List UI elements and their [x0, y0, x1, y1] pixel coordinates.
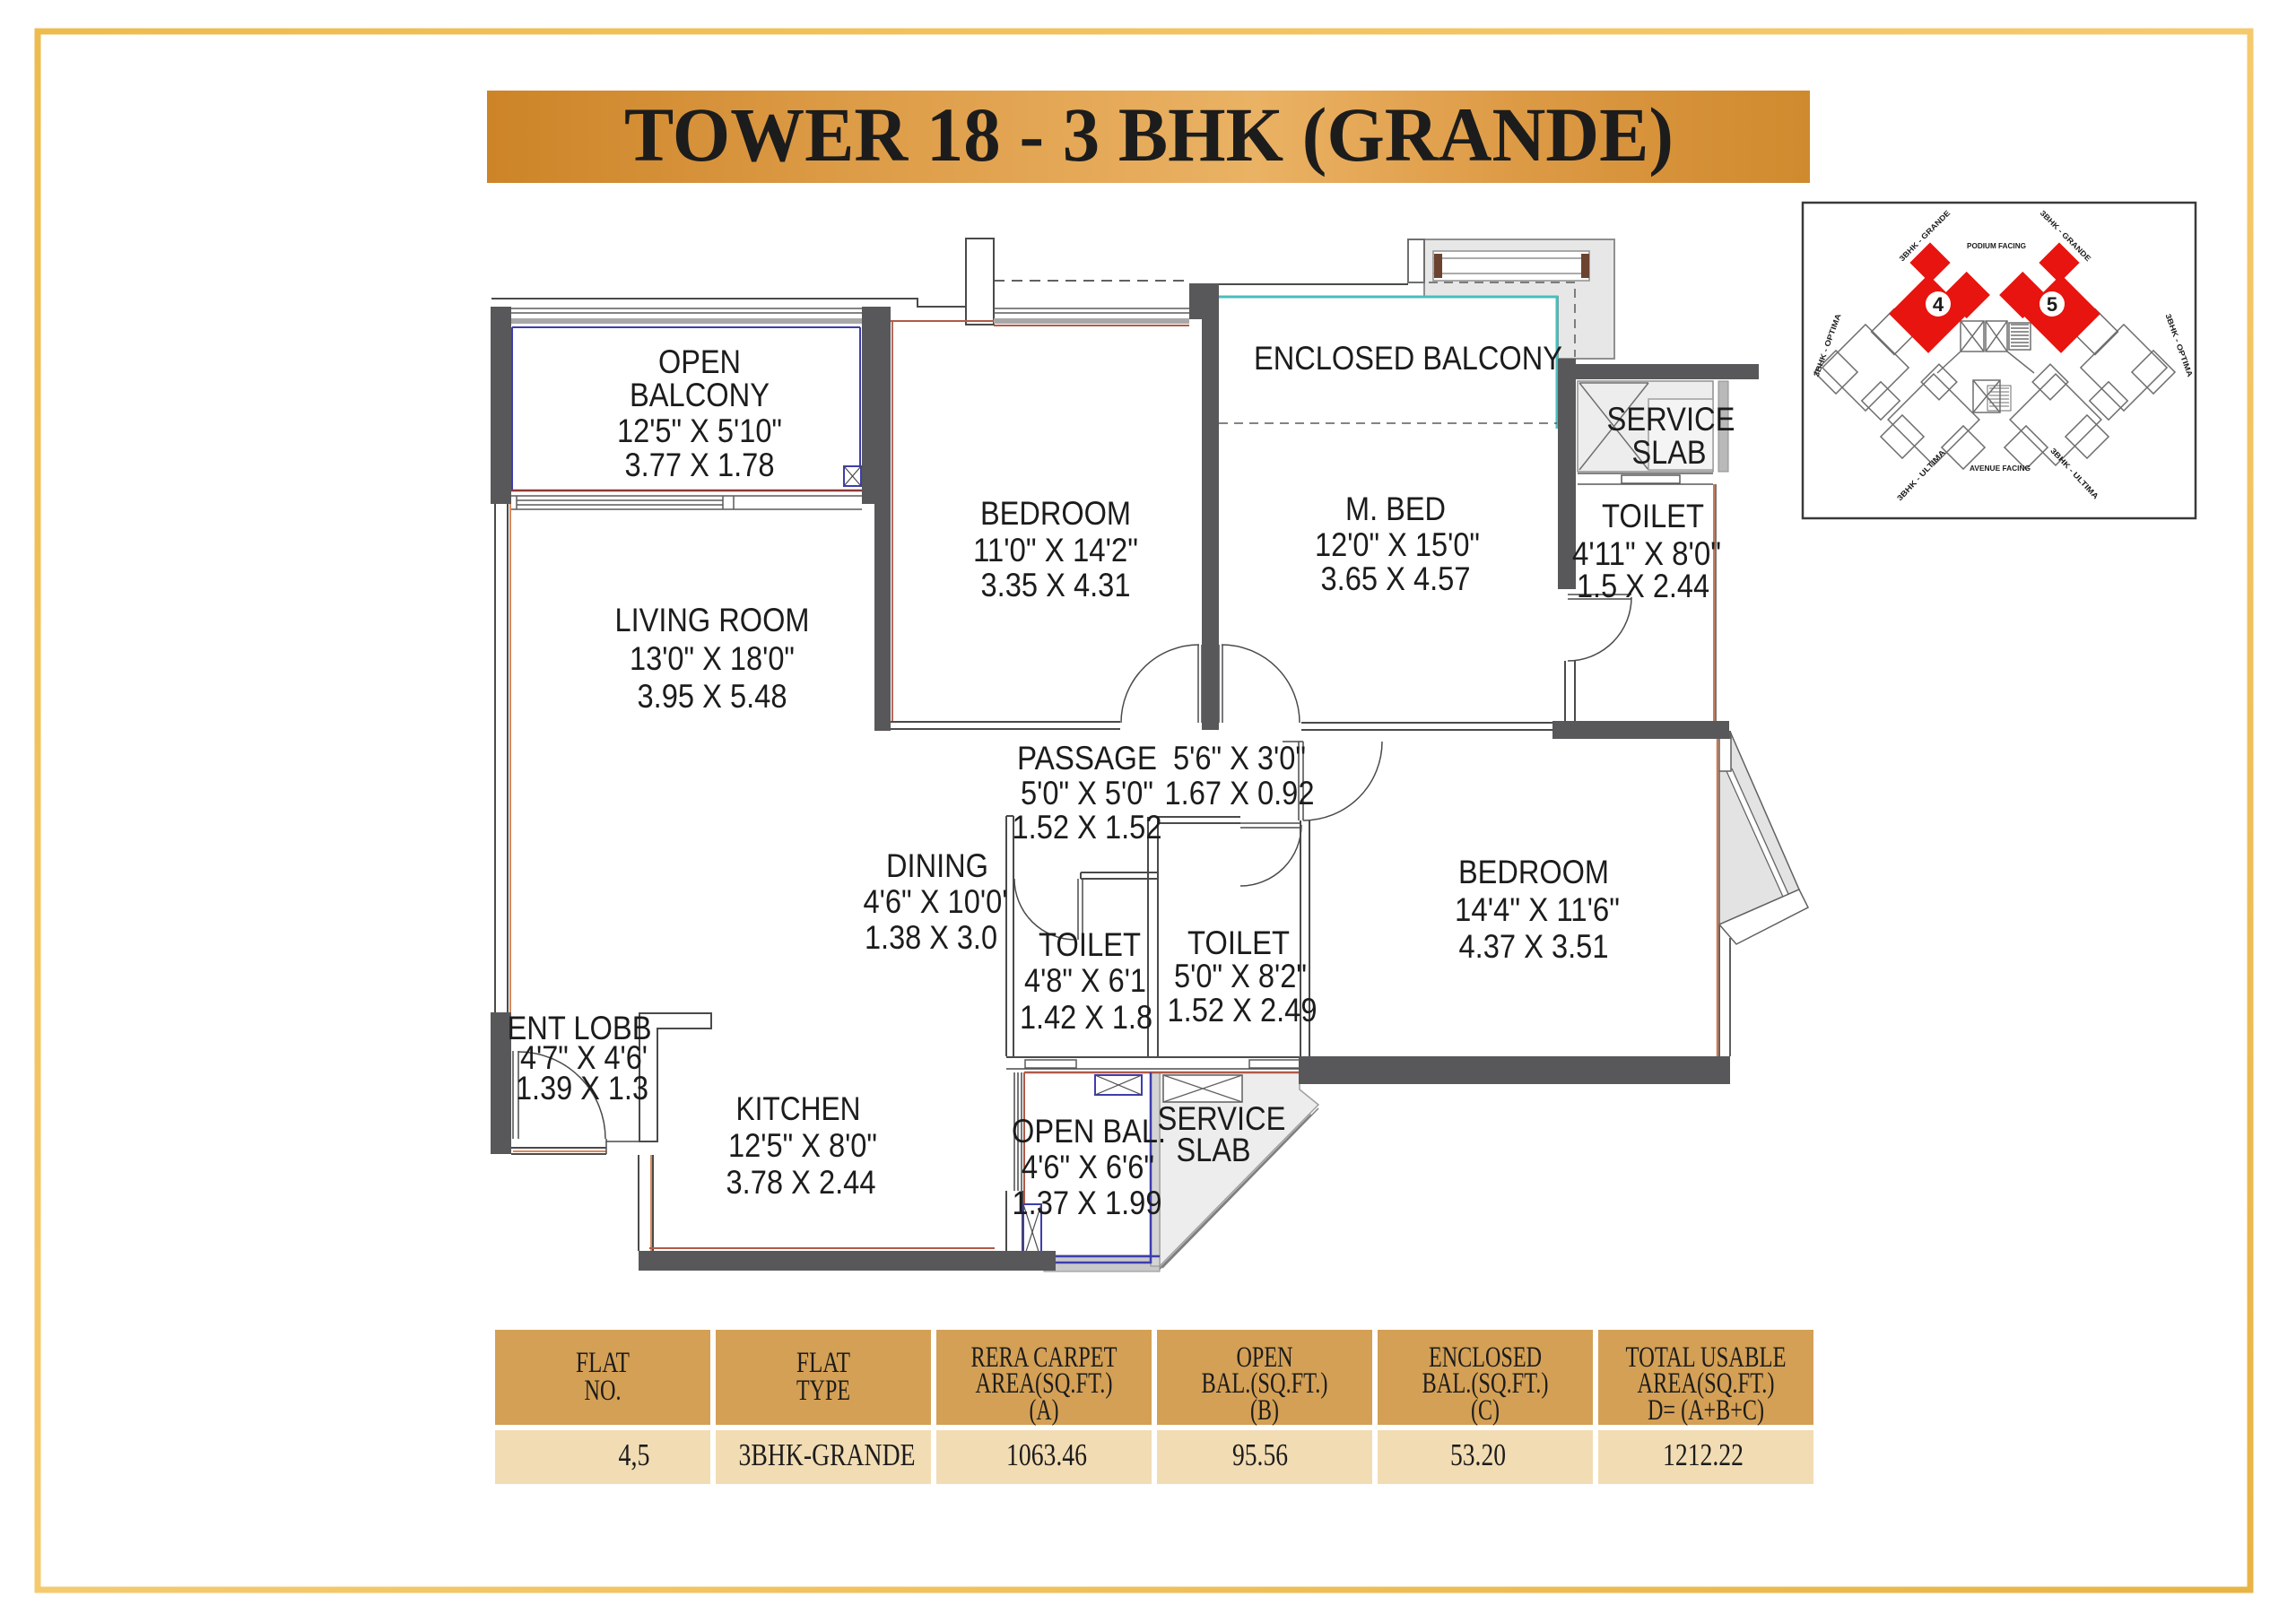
svg-text:4'8" X 6'1: 4'8" X 6'1 — [1024, 962, 1146, 999]
svg-text:1.52 X 1.52: 1.52 X 1.52 — [1013, 809, 1162, 846]
svg-text:SLAB: SLAB — [1632, 434, 1707, 471]
svg-text:D= (A+B+C): D= (A+B+C) — [1648, 1394, 1764, 1427]
svg-text:TOILET: TOILET — [1602, 498, 1704, 534]
svg-text:53.20: 53.20 — [1450, 1437, 1506, 1472]
svg-text:BALCONY: BALCONY — [630, 377, 770, 413]
svg-text:TOILET: TOILET — [1039, 926, 1141, 963]
svg-text:4.37 X 3.51: 4.37 X 3.51 — [1459, 928, 1609, 965]
svg-text:LIVING ROOM: LIVING ROOM — [615, 602, 810, 638]
svg-text:1.37 X 1.99: 1.37 X 1.99 — [1013, 1185, 1162, 1221]
svg-text:M. BED: M. BED — [1345, 490, 1446, 527]
svg-text:95.56: 95.56 — [1232, 1437, 1288, 1472]
svg-text:BEDROOM: BEDROOM — [1458, 854, 1609, 890]
svg-text:14'4" X 11'6": 14'4" X 11'6" — [1455, 891, 1620, 928]
svg-text:3.77 X 1.78: 3.77 X 1.78 — [625, 447, 775, 483]
svg-text:TOILET: TOILET — [1187, 924, 1290, 961]
svg-text:12'5" X 5'10": 12'5" X 5'10" — [617, 412, 782, 449]
svg-text:1.39 X 1.3: 1.39 X 1.3 — [516, 1070, 648, 1107]
svg-text:PASSAGE: PASSAGE — [1017, 740, 1157, 777]
svg-text:OPEN: OPEN — [658, 343, 741, 380]
svg-text:(A): (A) — [1030, 1394, 1059, 1427]
svg-text:NO.: NO. — [585, 1375, 622, 1407]
svg-text:5'6" X 3'0": 5'6" X 3'0" — [1173, 740, 1306, 777]
svg-text:4: 4 — [1933, 293, 1944, 316]
svg-text:4'11" X 8'0": 4'11" X 8'0" — [1572, 535, 1721, 572]
svg-text:1.5 X 2.44: 1.5 X 2.44 — [1577, 568, 1709, 604]
svg-text:3BHK-GRANDE: 3BHK-GRANDE — [739, 1437, 916, 1472]
svg-text:TOWER 18 - 3 BHK (GRANDE): TOWER 18 - 3 BHK (GRANDE) — [624, 91, 1674, 178]
svg-text:PODIUM FACING: PODIUM FACING — [1967, 241, 2026, 250]
svg-text:4'6" X 10'0': 4'6" X 10'0' — [864, 883, 1008, 920]
svg-text:12'0" X 15'0": 12'0" X 15'0" — [1315, 526, 1480, 563]
svg-text:(C): (C) — [1471, 1394, 1500, 1427]
svg-text:5'0" X 5'0": 5'0" X 5'0" — [1021, 775, 1153, 811]
svg-text:DINING: DINING — [886, 847, 988, 884]
svg-text:(B): (B) — [1250, 1394, 1279, 1427]
svg-text:12'5" X 8'0": 12'5" X 8'0" — [728, 1127, 877, 1164]
svg-text:ENCLOSED BALCONY: ENCLOSED BALCONY — [1254, 340, 1562, 377]
svg-text:11'0" X 14'2": 11'0" X 14'2" — [973, 532, 1138, 568]
svg-text:5: 5 — [2047, 293, 2057, 316]
svg-text:SLAB: SLAB — [1177, 1132, 1251, 1168]
svg-text:1.38 X 3.0: 1.38 X 3.0 — [865, 919, 997, 956]
svg-text:13'0" X 18'0": 13'0" X 18'0" — [630, 640, 795, 677]
svg-text:KITCHEN: KITCHEN — [736, 1090, 861, 1127]
svg-text:1.52 X 2.49: 1.52 X 2.49 — [1168, 992, 1318, 1028]
svg-text:3.95 X 5.48: 3.95 X 5.48 — [638, 678, 787, 715]
svg-text:5'0" X 8'2": 5'0" X 8'2" — [1174, 958, 1307, 994]
svg-text:1063.46: 1063.46 — [1006, 1437, 1087, 1472]
svg-text:4,5: 4,5 — [619, 1437, 650, 1472]
svg-text:OPEN BAL.: OPEN BAL. — [1012, 1113, 1166, 1150]
svg-text:AVENUE FACING: AVENUE FACING — [1970, 464, 2031, 473]
svg-text:SERVICE: SERVICE — [1607, 401, 1735, 438]
svg-text:4'6" X 6'6": 4'6" X 6'6" — [1022, 1149, 1154, 1185]
svg-text:3.78 X 2.44: 3.78 X 2.44 — [726, 1164, 876, 1201]
svg-text:TYPE: TYPE — [796, 1375, 850, 1407]
svg-text:1.67 X 0.92: 1.67 X 0.92 — [1165, 775, 1315, 811]
svg-text:BEDROOM: BEDROOM — [980, 495, 1131, 532]
svg-text:1.42 X 1.8: 1.42 X 1.8 — [1020, 999, 1152, 1036]
svg-text:1212.22: 1212.22 — [1663, 1437, 1744, 1472]
svg-text:3.65 X 4.57: 3.65 X 4.57 — [1321, 560, 1471, 597]
svg-text:3.35 X 4.31: 3.35 X 4.31 — [981, 567, 1131, 603]
